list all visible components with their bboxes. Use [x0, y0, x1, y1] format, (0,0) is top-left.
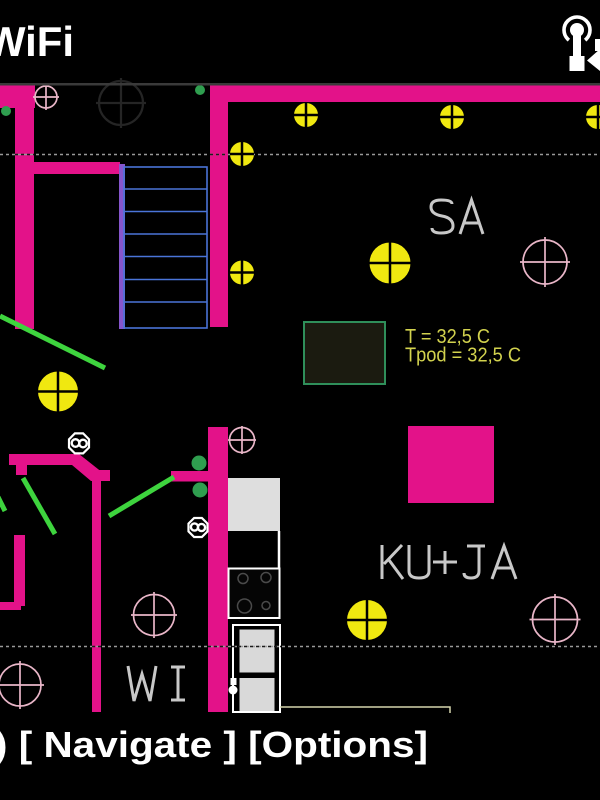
svg-text:WiFi: WiFi [0, 18, 74, 65]
svg-text:) [ Navigate ] [Options]: ) [ Navigate ] [Options] [0, 724, 428, 765]
svg-text:Tpod = 32,5 C: Tpod = 32,5 C [405, 345, 521, 367]
